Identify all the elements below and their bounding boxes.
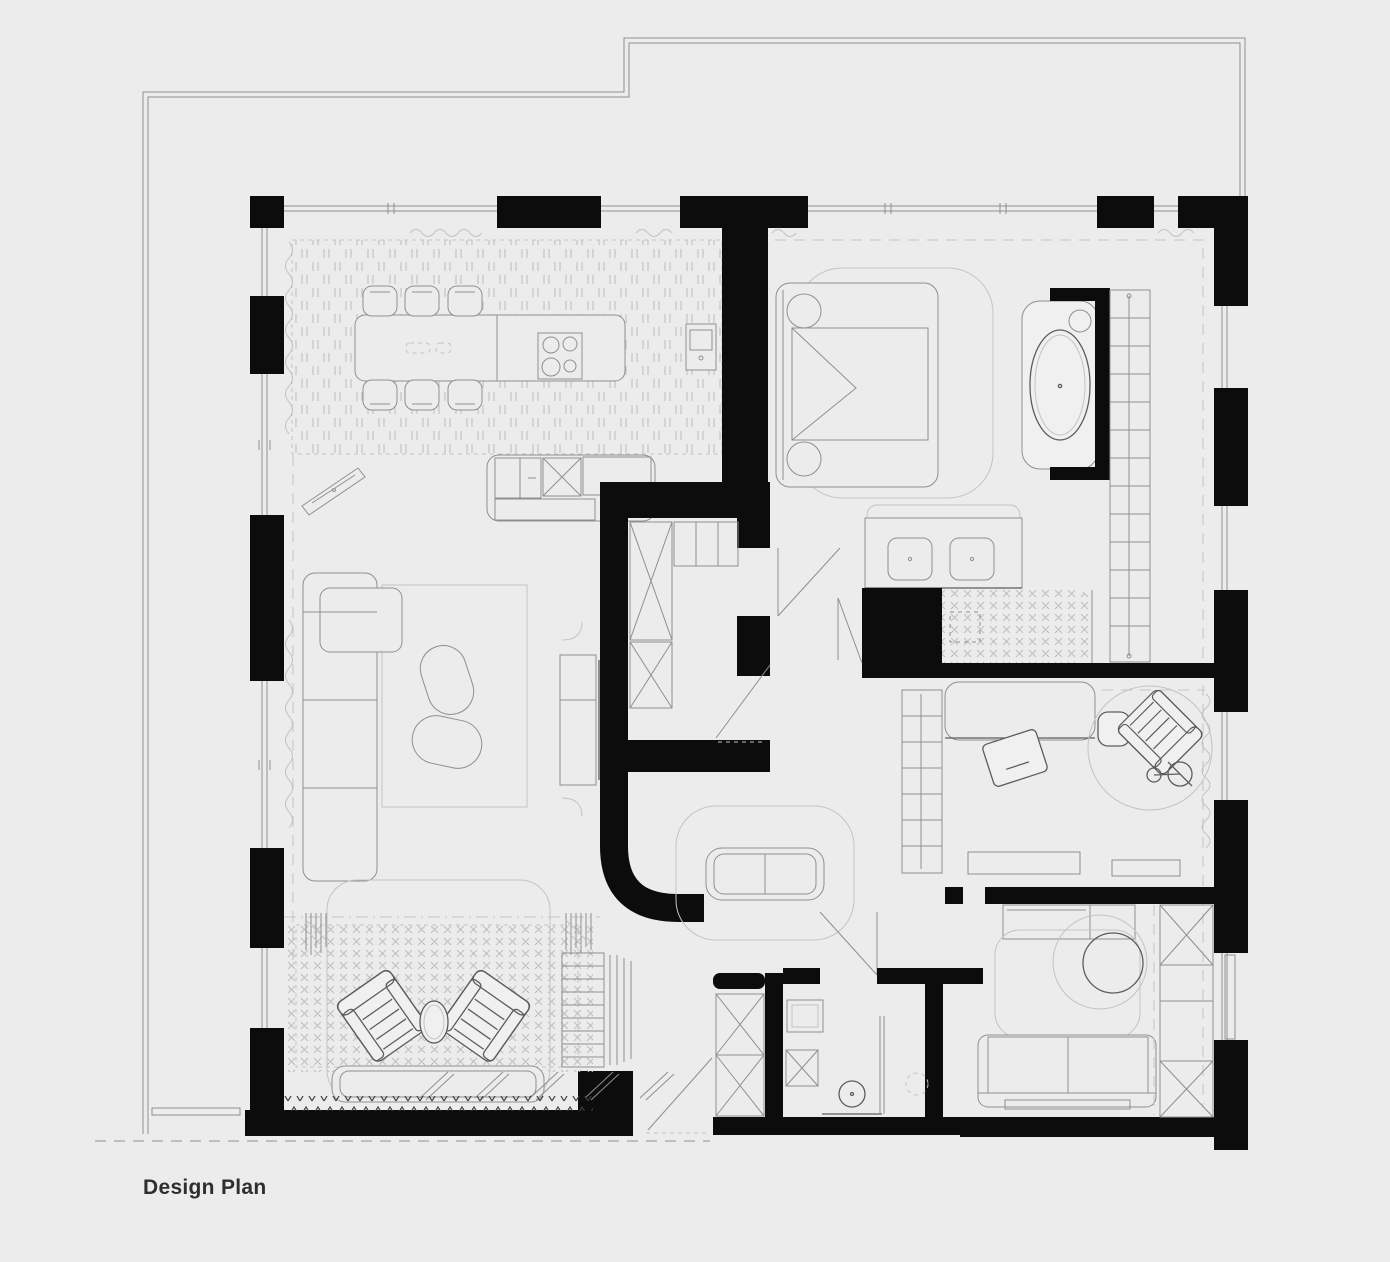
cooktop xyxy=(538,333,582,379)
bedroom-door-swing xyxy=(778,548,840,616)
plan-title: Design Plan xyxy=(143,1176,267,1200)
entry xyxy=(646,973,765,1133)
hall-door-swing xyxy=(820,912,877,975)
shower-drain xyxy=(822,1081,882,1114)
dining-table xyxy=(355,315,625,381)
entry-cabinet xyxy=(716,994,764,1116)
bathroom-sink xyxy=(787,1000,823,1032)
desk xyxy=(945,682,1095,740)
entry-door xyxy=(646,1058,712,1133)
bathroom-shelving xyxy=(1110,290,1150,662)
curved-wall xyxy=(614,772,704,908)
floor-plan-canvas: Design Plan xyxy=(0,0,1390,1262)
glass-partition xyxy=(880,1016,884,1114)
vanity xyxy=(865,505,1022,588)
terrace-side-table xyxy=(420,1001,448,1043)
tv-console xyxy=(560,622,599,816)
bathtub xyxy=(1022,288,1110,480)
small-bathroom xyxy=(765,968,983,1117)
floor-plan-drawing xyxy=(0,0,1390,1262)
living-room xyxy=(303,573,599,881)
sectional-sofa xyxy=(303,573,402,881)
office-console xyxy=(1112,860,1180,876)
wall-hatch-strip xyxy=(284,1096,593,1111)
ottoman-tables xyxy=(408,640,486,773)
bed xyxy=(776,283,938,487)
wardrobe-cabinets xyxy=(630,522,738,708)
guest-sofa xyxy=(978,1035,1156,1109)
guest-room xyxy=(978,905,1235,1117)
guest-console xyxy=(1003,905,1135,939)
office-door-swing xyxy=(838,598,862,663)
curtain-squiggle-left xyxy=(286,620,293,828)
hall-bench xyxy=(706,848,824,900)
washing-machine xyxy=(786,1050,818,1086)
central-hall xyxy=(676,806,877,975)
round-table xyxy=(1083,933,1143,993)
curtain-squiggle xyxy=(636,230,672,237)
shower xyxy=(862,588,1215,678)
wall-shelf-diagonal xyxy=(302,468,365,515)
guest-rug xyxy=(995,930,1140,1038)
ceiling-light xyxy=(906,1073,928,1095)
curtain-squiggle xyxy=(410,230,482,237)
wardrobe-door xyxy=(716,665,770,742)
hallway-shelf xyxy=(902,690,942,873)
wardrobe-room xyxy=(600,482,770,908)
terrace-rug-hatch xyxy=(284,922,593,1072)
office xyxy=(945,682,1215,904)
built-in-oven xyxy=(686,324,716,370)
radiator xyxy=(968,852,1080,874)
guest-closet xyxy=(1154,905,1213,1117)
curtain-squiggle-left xyxy=(286,242,293,434)
